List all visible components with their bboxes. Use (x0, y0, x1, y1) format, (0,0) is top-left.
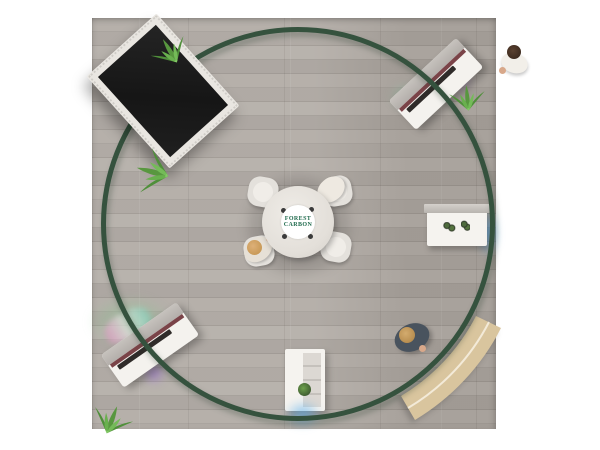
visitor-top-right-hand (499, 67, 506, 74)
visitor-top-right-head (507, 45, 521, 59)
booth-render: FOREST CARBON (0, 0, 600, 450)
